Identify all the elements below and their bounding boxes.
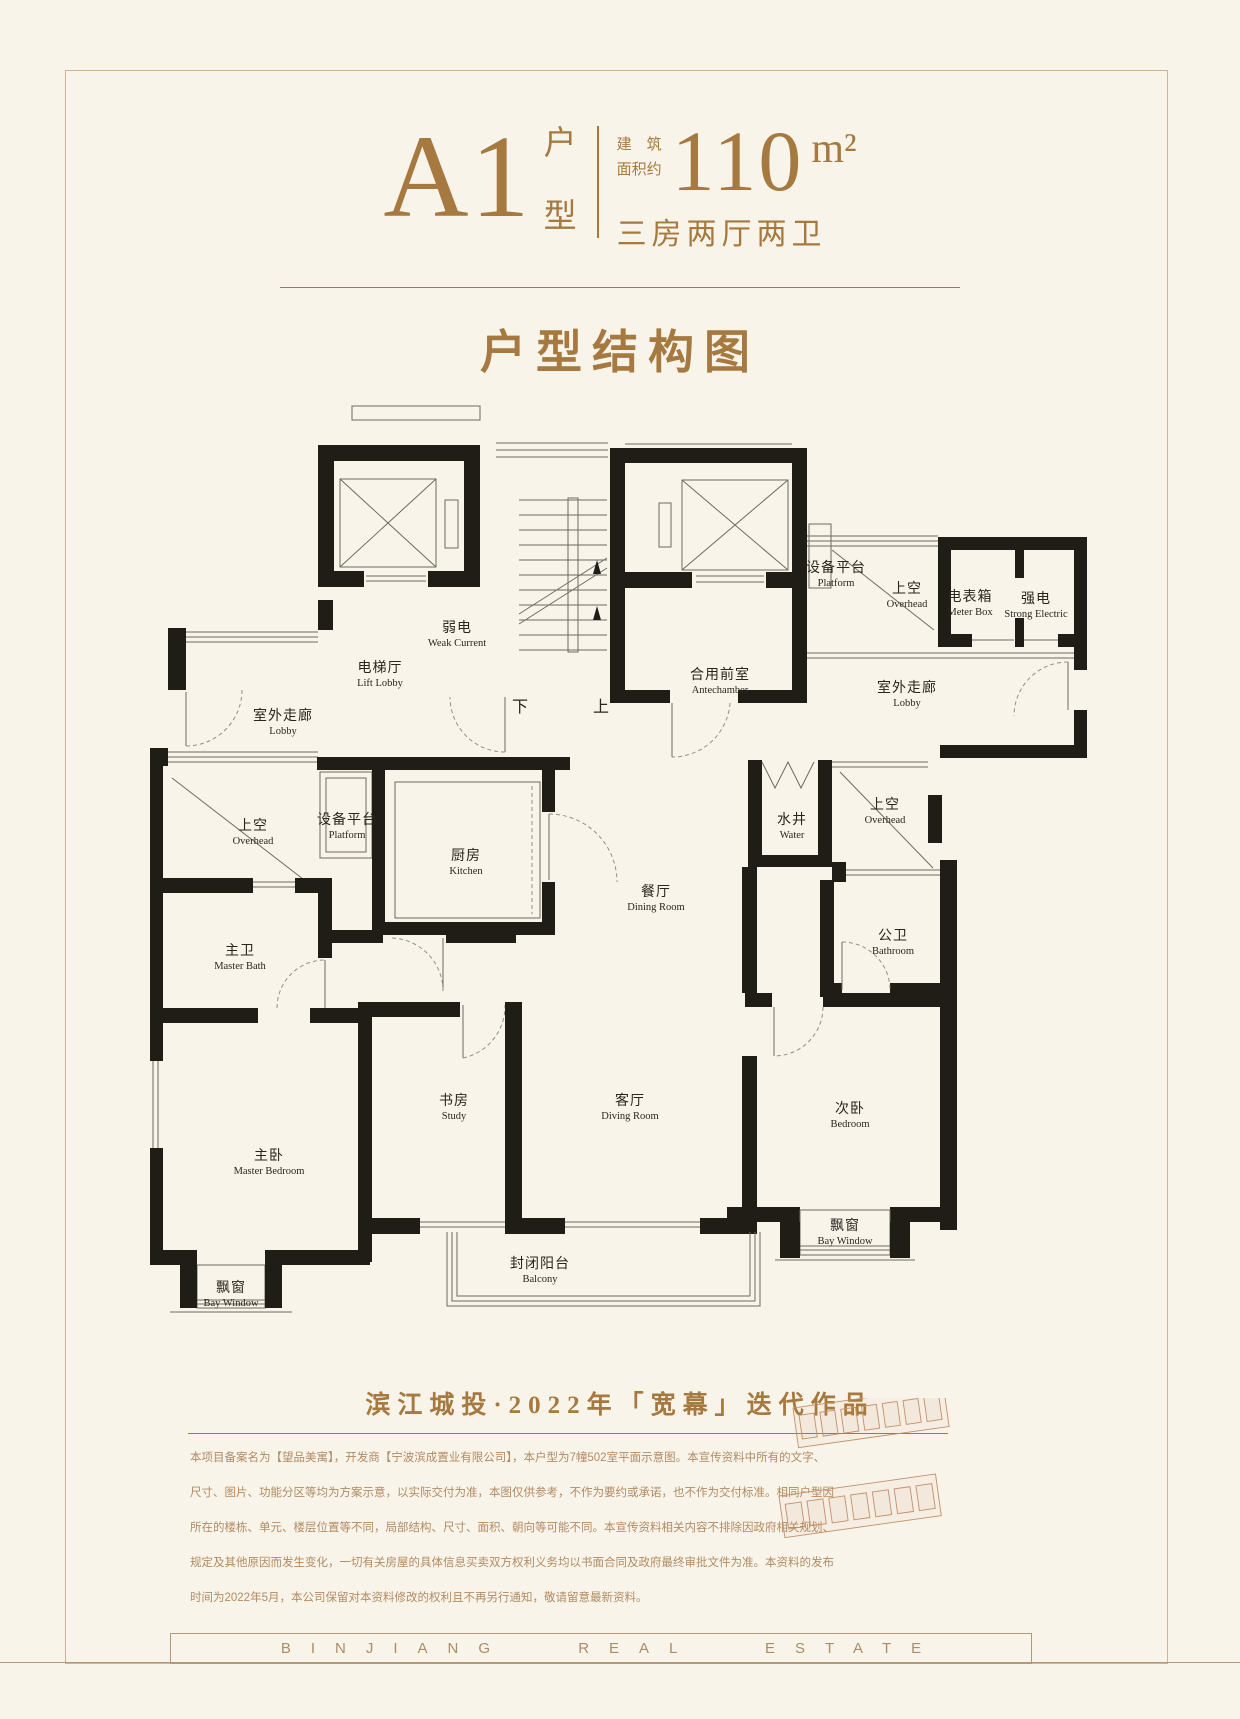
room-label-en: Bedroom bbox=[830, 1119, 869, 1130]
room-label-en: Platform bbox=[329, 830, 366, 841]
stair-down-label: 下 bbox=[512, 699, 528, 716]
room-label-cn: 设备平台 bbox=[806, 559, 866, 576]
room-label-en: Bay Window bbox=[817, 1236, 873, 1247]
room-label-en: Strong Electric bbox=[1004, 609, 1068, 620]
room-label-cn: 厨房 bbox=[451, 848, 481, 864]
room-label-cn: 次卧 bbox=[835, 1101, 865, 1117]
room-label-en: Kitchen bbox=[449, 866, 483, 877]
room-label-cn: 上空 bbox=[870, 797, 900, 813]
room-label-cn: 上空 bbox=[892, 581, 922, 597]
room-label-cn: 水井 bbox=[777, 812, 807, 828]
room-label-en: Lobby bbox=[269, 726, 297, 737]
disclaimer-line: 规定及其他原因而发生变化，一切有关房屋的具体信息买卖双方权利义务均以书面合同及政… bbox=[190, 1546, 830, 1581]
room-label-cn: 封闭阳台 bbox=[510, 1256, 570, 1272]
room-label-cn: 飘窗 bbox=[216, 1279, 246, 1296]
disclaimer-line: 所在的楼栋、单元、楼层位置等不同，局部结构、尺寸、面积、朝向等可能不同。本宣传资… bbox=[190, 1511, 830, 1546]
disclaimer-line: 时间为2022年5月，本公司保留对本资料修改的权利且不再另行通知，敬请留意最新资… bbox=[190, 1581, 830, 1616]
floorplan-poster-page: A1 户 型 建 筑 面积约 110 m² 三房两厅两卫 户型结构图 bbox=[0, 0, 1240, 1719]
room-label-cn: 主卫 bbox=[225, 943, 255, 959]
room-label-cn: 电表箱 bbox=[948, 589, 993, 605]
site-plan-sketch bbox=[775, 1398, 975, 1573]
disclaimer-line: 本项目备案名为【望品美寓】，开发商【宁波滨成置业有限公司】，本户型为7幢502室… bbox=[190, 1441, 830, 1476]
room-label-en: Study bbox=[442, 1111, 467, 1122]
room-label-cn: 公卫 bbox=[878, 929, 908, 944]
room-label-en: Lobby bbox=[893, 698, 921, 709]
stair-up-label: 上 bbox=[593, 698, 609, 716]
room-label-cn: 室外走廊 bbox=[877, 679, 937, 696]
tagline: 滨江城投·2022年「宽幕」迭代作品 bbox=[0, 1385, 1240, 1421]
room-label-en: Water bbox=[780, 830, 805, 841]
room-label-cn: 飘窗 bbox=[830, 1217, 860, 1234]
room-label-cn: 餐厅 bbox=[641, 884, 671, 900]
room-label-cn: 书房 bbox=[439, 1093, 469, 1109]
room-label-en: Platform bbox=[818, 578, 855, 589]
disclaimer-line: 尺寸、图片、功能分区等均为方案示意，以实际交付为准，本图仅供参考，不作为要约或承… bbox=[190, 1476, 830, 1511]
room-label-en: Bathroom bbox=[872, 946, 914, 957]
room-label-en: Master Bedroom bbox=[234, 1166, 305, 1177]
room-label-cn: 弱电 bbox=[442, 620, 472, 636]
room-label-cn: 设备平台 bbox=[317, 811, 377, 828]
room-label-cn: 客厅 bbox=[615, 1092, 645, 1109]
footer-band-text: BINJIANG REAL ESTATE bbox=[261, 1640, 941, 1657]
room-label-en: Overhead bbox=[233, 836, 275, 847]
room-label-cn: 室外走廊 bbox=[253, 707, 313, 724]
room-label-cn: 强电 bbox=[1021, 591, 1051, 607]
disclaimer: 本项目备案名为【望品美寓】，开发商【宁波滨成置业有限公司】，本户型为7幢502室… bbox=[190, 1441, 830, 1616]
room-label-en: Overhead bbox=[865, 815, 907, 826]
room-label-en: Bay Window bbox=[203, 1298, 259, 1309]
room-label-en: Lift Lobby bbox=[357, 678, 404, 689]
room-label-en: Weak Current bbox=[428, 638, 486, 649]
bottom-rule bbox=[0, 1662, 1240, 1663]
room-label-cn: 电梯厅 bbox=[358, 660, 403, 676]
footer-band: BINJIANG REAL ESTATE bbox=[170, 1633, 1032, 1664]
room-label-en: Diving Room bbox=[601, 1111, 658, 1122]
room-label-cn: 合用前室 bbox=[690, 666, 750, 683]
room-label-en: Antechamber bbox=[692, 685, 749, 696]
room-label-en: Balcony bbox=[523, 1274, 559, 1285]
room-label-en: Dining Room bbox=[627, 902, 684, 913]
room-label-en: Overhead bbox=[887, 599, 929, 610]
room-label-cn: 上空 bbox=[238, 818, 268, 834]
room-label-cn: 主卧 bbox=[254, 1148, 284, 1164]
room-label-en: Master Bath bbox=[214, 961, 266, 972]
room-label-en: Meter Box bbox=[947, 607, 993, 618]
